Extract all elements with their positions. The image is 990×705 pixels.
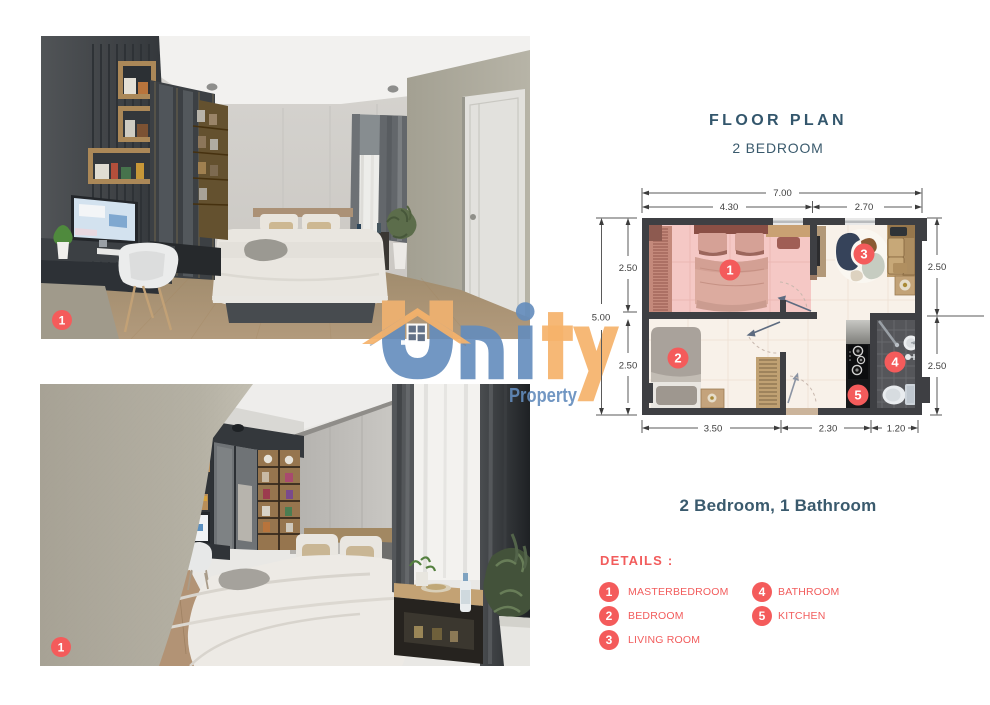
svg-text:5: 5 bbox=[854, 388, 861, 403]
svg-text:5.00: 5.00 bbox=[592, 313, 611, 324]
svg-text:2: 2 bbox=[674, 351, 681, 366]
svg-text:4.30: 4.30 bbox=[720, 202, 739, 213]
svg-text:2.50: 2.50 bbox=[619, 263, 638, 274]
svg-text:2.50: 2.50 bbox=[928, 262, 947, 273]
svg-text:1: 1 bbox=[726, 263, 733, 278]
svg-text:4: 4 bbox=[891, 355, 899, 370]
svg-text:1.20: 1.20 bbox=[887, 424, 906, 435]
svg-text:3: 3 bbox=[860, 247, 867, 262]
svg-text:7.00: 7.00 bbox=[773, 188, 792, 199]
svg-text:2.50: 2.50 bbox=[619, 361, 638, 372]
svg-text:2.50: 2.50 bbox=[928, 361, 947, 372]
svg-text:2.70: 2.70 bbox=[855, 202, 874, 213]
svg-text:2.30: 2.30 bbox=[819, 424, 838, 435]
svg-text:3.50: 3.50 bbox=[704, 424, 723, 435]
